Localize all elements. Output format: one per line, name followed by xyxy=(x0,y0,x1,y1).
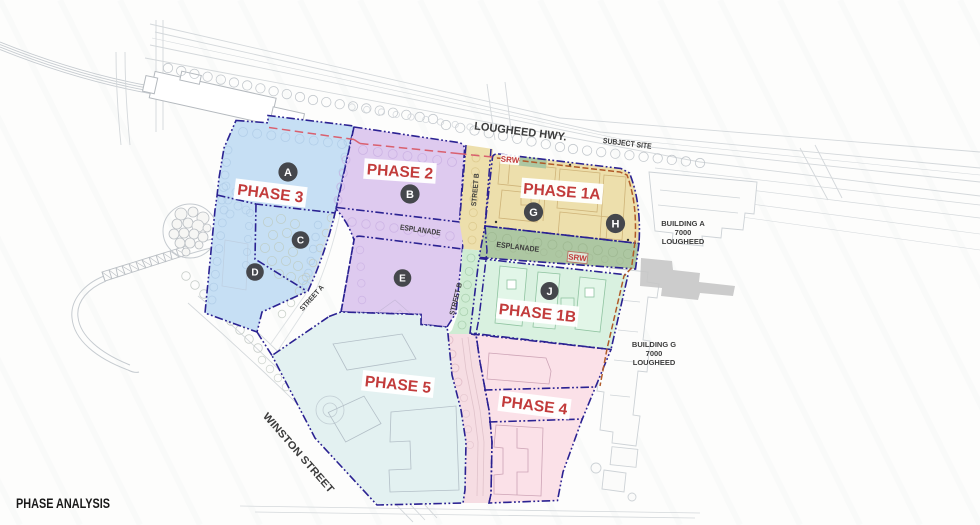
svg-text:PHASE ANALYSIS: PHASE ANALYSIS xyxy=(16,496,110,511)
svg-text:7000: 7000 xyxy=(675,228,692,237)
svg-text:LOUGHEED: LOUGHEED xyxy=(633,358,676,367)
svg-text:C: C xyxy=(297,236,304,247)
svg-text:A: A xyxy=(284,167,292,179)
svg-text:B: B xyxy=(406,189,414,201)
svg-text:E: E xyxy=(399,274,406,285)
svg-text:BUILDING A: BUILDING A xyxy=(661,219,705,228)
svg-text:7000: 7000 xyxy=(646,349,663,358)
svg-text:D: D xyxy=(251,268,258,279)
svg-text:SRW: SRW xyxy=(500,155,520,166)
svg-text:LOUGHEED: LOUGHEED xyxy=(662,237,705,246)
svg-text:G: G xyxy=(529,207,538,219)
svg-text:H: H xyxy=(612,218,620,230)
svg-text:J: J xyxy=(546,286,552,298)
svg-text:BUILDING G: BUILDING G xyxy=(632,340,676,349)
